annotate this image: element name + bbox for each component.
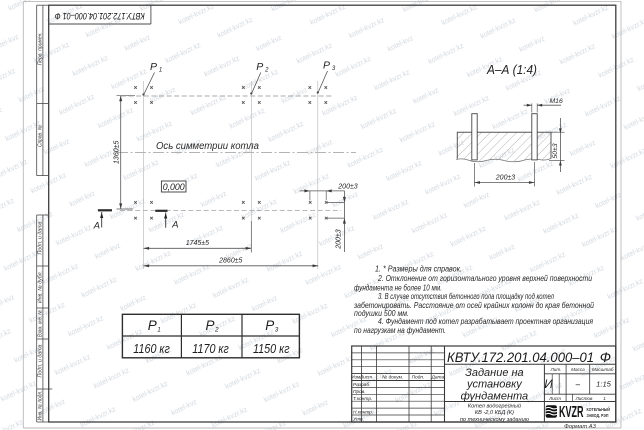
svg-text:по техническому заданию: по техническому заданию bbox=[460, 417, 530, 423]
svg-text:Р: Р bbox=[148, 318, 157, 333]
svg-text:КВТУ.172.201.04.000–01 Ф: КВТУ.172.201.04.000–01 Ф bbox=[55, 11, 145, 21]
svg-text:КВТУ.172.201.04.000–01: КВТУ.172.201.04.000–01 bbox=[447, 350, 594, 366]
svg-text:2: 2 bbox=[264, 68, 269, 74]
svg-text:2: 2 bbox=[214, 326, 219, 333]
svg-text:Котел водогрейный: Котел водогрейный bbox=[468, 403, 521, 410]
svg-text:1: 1 bbox=[603, 396, 606, 401]
svg-text:1745±5: 1745±5 bbox=[186, 240, 209, 247]
svg-text:1:15: 1:15 bbox=[596, 380, 612, 389]
svg-text:Перв. примен.: Перв. примен. bbox=[37, 32, 43, 65]
svg-text:Подп. и дата: Подп. и дата bbox=[37, 221, 43, 254]
svg-text:ЗАВОД, РЭП: ЗАВОД, РЭП bbox=[587, 413, 609, 418]
svg-text:Разраб.: Разраб. bbox=[353, 382, 370, 388]
svg-text:200±3: 200±3 bbox=[337, 183, 358, 190]
svg-text:1170 кг: 1170 кг bbox=[192, 341, 229, 356]
svg-text:2. Отклонение от горизонтальн: 2. Отклонение от горизонтального уровня … bbox=[377, 274, 592, 283]
svg-text:4. Фундамент под котел разраб: 4. Фундамент под котел разрабатывает про… bbox=[378, 317, 594, 326]
svg-text:Листов: Листов bbox=[575, 396, 593, 401]
svg-text:КВ -2,0 КБД (К): КВ -2,0 КБД (К) bbox=[475, 410, 514, 416]
svg-text:Ось симметрии котла: Ось симметрии котла bbox=[156, 141, 260, 152]
svg-text:Ф: Ф bbox=[600, 350, 611, 366]
svg-text:Лист: Лист bbox=[548, 396, 561, 401]
svg-text:Пров.: Пров. bbox=[353, 389, 366, 395]
svg-text:Р: Р bbox=[256, 61, 263, 73]
svg-text:1150 кг: 1150 кг bbox=[253, 341, 290, 356]
svg-text:Формат А3: Формат А3 bbox=[564, 424, 596, 430]
svg-text:Т.контр.: Т.контр. bbox=[353, 396, 372, 402]
svg-text:Р: Р bbox=[323, 60, 330, 72]
svg-text:1: 1 bbox=[159, 68, 162, 74]
svg-text:1. * Размеры для справок.: 1. * Размеры для справок. bbox=[375, 265, 462, 274]
svg-text:Лит.: Лит. bbox=[550, 367, 562, 372]
svg-text:Взам. инв. №: Взам. инв. № bbox=[37, 310, 43, 337]
svg-text:Утв.: Утв. bbox=[353, 417, 364, 423]
svg-text:1: 1 bbox=[157, 326, 161, 333]
svg-text:И: И bbox=[544, 377, 553, 391]
svg-text:Задание на: Задание на bbox=[465, 367, 524, 379]
svg-text:Инв. № дубл.: Инв. № дубл. bbox=[37, 271, 43, 303]
svg-text:М16: М16 bbox=[550, 98, 563, 105]
svg-text:0,000: 0,000 bbox=[163, 182, 185, 192]
svg-text:3: 3 bbox=[275, 326, 279, 333]
svg-text:KVZR: KVZR bbox=[559, 404, 584, 421]
svg-text:50±3: 50±3 bbox=[552, 143, 559, 158]
svg-text:Масса: Масса bbox=[571, 367, 585, 372]
svg-text:№ докум.: № докум. bbox=[382, 375, 403, 381]
svg-text:А: А bbox=[171, 220, 178, 231]
svg-text:Дата: Дата bbox=[430, 375, 444, 381]
svg-text:2860±5: 2860±5 bbox=[218, 257, 242, 264]
svg-text:Лист: Лист bbox=[359, 375, 372, 381]
svg-text:Р: Р bbox=[265, 318, 274, 333]
svg-text:Р: Р bbox=[205, 318, 214, 333]
svg-text:Подп. и дата: Подп. и дата bbox=[37, 344, 43, 377]
svg-text:Н.контр.: Н.контр. bbox=[353, 410, 373, 416]
svg-text:А: А bbox=[93, 220, 100, 231]
svg-text:Р: Р bbox=[150, 61, 157, 73]
svg-text:200±3: 200±3 bbox=[495, 175, 516, 182]
svg-text:установку: установку bbox=[466, 379, 523, 391]
svg-text:по нагрузкам на фундамент.: по нагрузкам на фундамент. bbox=[354, 326, 446, 335]
svg-text:фундамента: фундамента bbox=[461, 391, 529, 403]
svg-text:Подп.: Подп. bbox=[412, 375, 425, 381]
svg-text:Инв. № подл.: Инв. № подл. bbox=[37, 391, 43, 421]
svg-text:200±3: 200±3 bbox=[336, 229, 343, 250]
svg-text:Масштаб: Масштаб bbox=[592, 367, 614, 372]
svg-text:А–А (1:4): А–А (1:4) bbox=[486, 62, 537, 77]
svg-text:–: – bbox=[575, 380, 581, 389]
svg-text:Справ. №: Справ. № bbox=[37, 125, 43, 147]
svg-text:1160 кг: 1160 кг bbox=[133, 341, 170, 356]
svg-text:1360±5: 1360±5 bbox=[113, 141, 120, 164]
svg-text:КОТЕЛЬНЫЙ: КОТЕЛЬНЫЙ bbox=[587, 407, 611, 412]
